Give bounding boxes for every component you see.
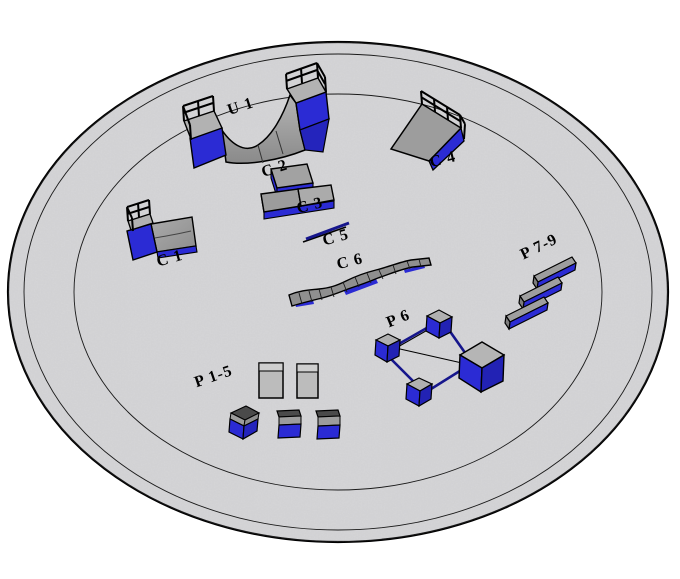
model-viewport[interactable]: U 1 C 1 C 2 C 3 C 4 C 5 [0,0,680,579]
p15-tall-box-b-top [297,364,318,372]
p15-cube3-blue [317,425,340,439]
p15-cube3-band [318,416,340,426]
scene-canvas[interactable]: U 1 C 1 C 2 C 3 C 4 C 5 [0,0,680,579]
p15-cube2-blue [278,424,301,438]
p15-tall-box-a-top [259,363,283,371]
